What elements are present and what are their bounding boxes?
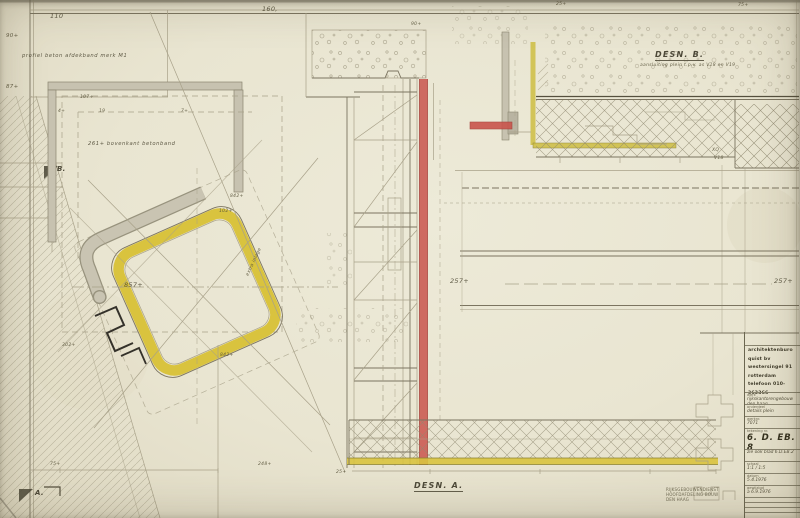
dim-75-label: 75+ <box>50 462 60 467</box>
note-profiel: profiel beton afdekband merk M1 <box>22 53 127 59</box>
note-bovenkant: 261+ bovenkant betonband <box>88 141 176 147</box>
red-highlight-vertical <box>420 79 428 465</box>
field-value: 5.4.1976 <box>747 478 798 483</box>
field-value: rijkskantorengebouw den haag <box>747 397 798 404</box>
dim-857-label: 857+ <box>124 281 143 289</box>
level-257-left: 257+ <box>450 277 469 285</box>
architect-line: westersingel 91 <box>748 364 800 373</box>
dim-7-label: 7+ <box>181 109 188 114</box>
section-marker-a-label: A. <box>35 489 44 497</box>
field-datum: datum 5.4.1976 <box>747 474 798 485</box>
drawing-linework <box>0 0 800 518</box>
dim-75b-label: 75+ <box>738 3 748 8</box>
yellow-band-vertical <box>531 42 536 145</box>
dim-842-label: 842+ <box>230 194 244 199</box>
dim-110-label: 110 <box>50 12 63 20</box>
field-werk: werk rijkskantorengebouw den haag <box>747 393 798 404</box>
rgd-stamp: RIJKSGEBOUWENDIENST HOOFDAFDELING BOUW D… <box>666 487 744 502</box>
concrete-band-right <box>234 90 243 192</box>
dim-302-label: 302+ <box>62 343 76 348</box>
dim-248-label: 248+ <box>258 462 272 467</box>
dim-90-label: 90+ <box>6 33 19 39</box>
architect-line: architektenburo <box>748 347 800 356</box>
architect-line: quist bv <box>748 356 800 365</box>
title-block: architektenburo quist bv westersingel 91… <box>744 332 800 518</box>
field-werknr: werknr. 7071 <box>747 417 798 428</box>
level-257-right: 257+ <box>774 277 793 285</box>
concrete-band-left <box>48 90 56 242</box>
drawing-number: 6. D. EB. 8 <box>747 433 798 449</box>
dim-842b-label: 842+ <box>220 353 234 358</box>
desn-a-title: DESN. A. <box>414 481 463 492</box>
dim-25-label: 25+ <box>336 470 346 475</box>
dim-4-label: 4+ <box>58 109 65 114</box>
drawing-sheet: 110 160, 90+ 87+ 107+ 4+ 19 7+ profiel b… <box>0 0 800 518</box>
red-highlight-horizontal <box>470 122 512 129</box>
architect-line: rotterdam <box>748 373 800 382</box>
reference-note-text: zie ook blad 6.D.EB.2 <box>747 450 798 455</box>
dim-160-label: 160, <box>262 5 278 13</box>
field-schaal: schaal 1:1 / 1:5 <box>747 462 798 473</box>
field-value: 1:1 / 1:5 <box>747 466 798 471</box>
paper-stain <box>727 187 800 263</box>
grid-ref-v18: V18 <box>714 156 724 161</box>
reference-note: zie ook blad 6.D.EB.2 <box>747 450 798 461</box>
field-value: 7071 <box>747 421 798 426</box>
field-value: details plein <box>747 409 798 414</box>
yellow-strip-bottom <box>347 458 718 465</box>
dim-102-label: 102+ <box>219 209 233 214</box>
field-value: a 6.9.1976 <box>747 490 798 495</box>
field-formaat: formaat <box>747 508 798 518</box>
desn-b-title: DESN. B. <box>655 50 704 61</box>
dim-87-label: 87+ <box>6 84 19 90</box>
drawing-number-box: tekening nr. 6. D. EB. 8 <box>747 429 798 449</box>
dim-25b-label: 25+ <box>556 2 566 7</box>
stamp-line: DEN HAAG <box>666 497 744 502</box>
dim-107-label: 107+ <box>80 95 94 100</box>
field-onderdeel: onderdeel details plein <box>747 405 798 416</box>
dim-90b-label: 90+ <box>411 22 421 27</box>
section-marker-b-label: B. <box>57 165 66 173</box>
grid-ref-xq: XQ <box>712 148 719 153</box>
architect-block: architektenburo quist bv westersingel 91… <box>748 347 800 399</box>
desn-b-subtitle: aansluiting plein t.p.v. as V18 en V19 <box>640 63 735 68</box>
concrete-band-top <box>48 82 242 90</box>
dim-19-label: 19 <box>99 109 105 114</box>
field-gewijzigd: gewijzigd a 6.9.1976 <box>747 486 798 497</box>
paper-top-edge <box>0 0 800 3</box>
